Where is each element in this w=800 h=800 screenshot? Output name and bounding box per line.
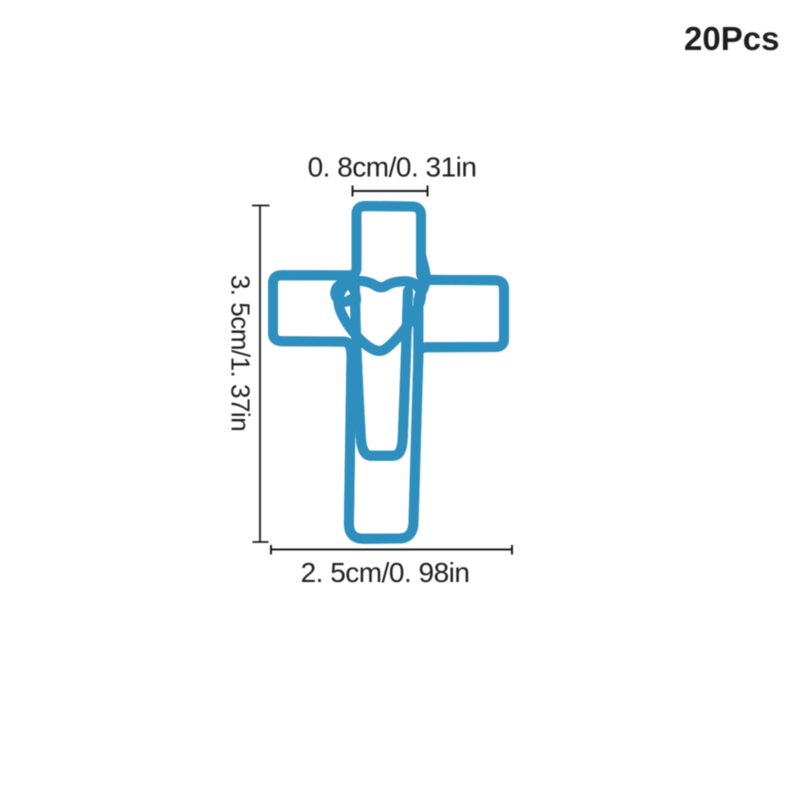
svg-text:0. 8cm/0. 31in: 0. 8cm/0. 31in: [308, 152, 477, 183]
svg-text:3. 5cm/1. 37in: 3. 5cm/1. 37in: [226, 275, 256, 431]
svg-text:20Pcs: 20Pcs: [684, 20, 779, 57]
svg-text:2. 5cm/0. 98in: 2. 5cm/0. 98in: [301, 557, 470, 588]
